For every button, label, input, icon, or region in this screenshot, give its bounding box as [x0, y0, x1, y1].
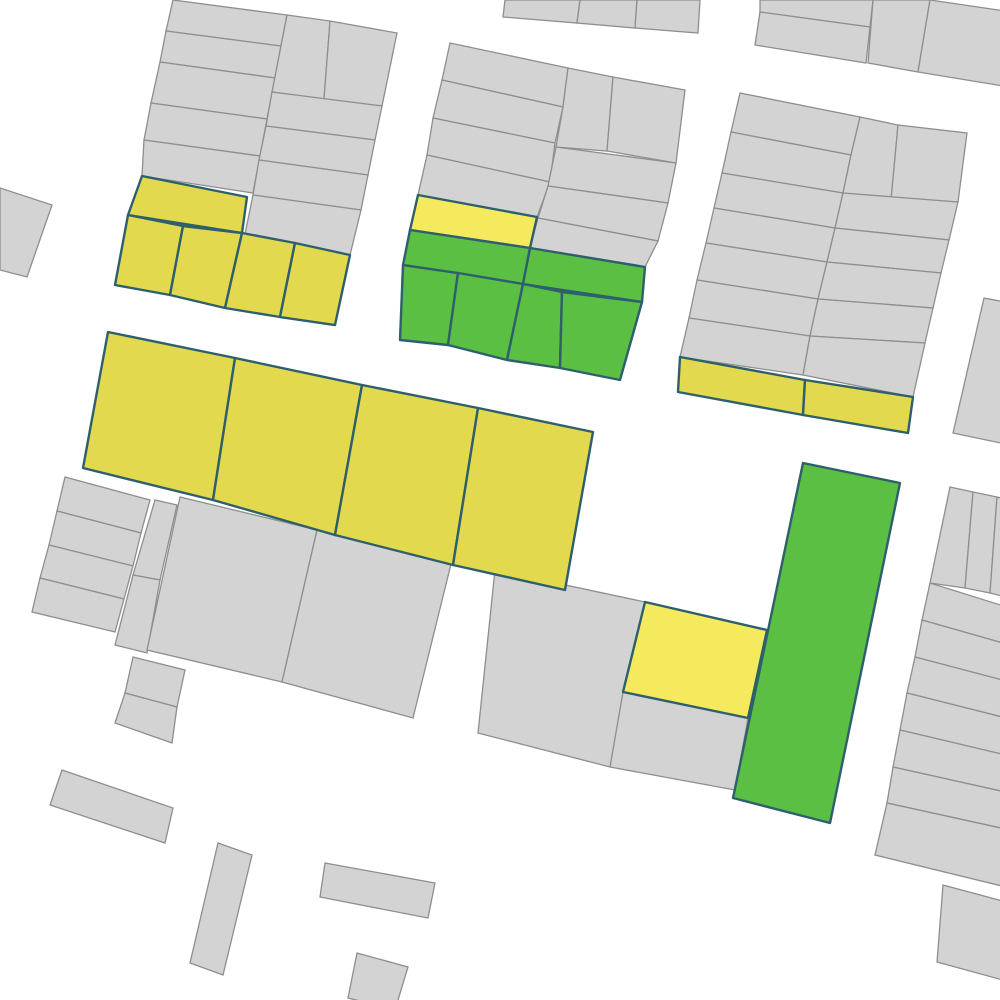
- parcel-gray[interactable]: [324, 21, 397, 106]
- parcel-gray[interactable]: [348, 953, 408, 1000]
- parcel-gray[interactable]: [190, 843, 252, 975]
- parcel-gray[interactable]: [607, 77, 685, 163]
- parcel-gray[interactable]: [50, 770, 173, 843]
- parcel-gray[interactable]: [635, 0, 700, 33]
- map-viewport[interactable]: [0, 0, 1000, 1000]
- parcel-gray[interactable]: [891, 125, 967, 202]
- parcel-gray[interactable]: [320, 863, 435, 918]
- parcel-yellow[interactable]: [453, 408, 593, 590]
- parcel-gray[interactable]: [953, 298, 1000, 445]
- parcel-gray[interactable]: [503, 0, 580, 23]
- parcel-green[interactable]: [560, 292, 642, 380]
- parcel-yellow[interactable]: [83, 332, 235, 500]
- parcel-gray[interactable]: [918, 0, 1000, 86]
- parcel-gray[interactable]: [937, 885, 1000, 982]
- map-canvas[interactable]: [0, 0, 1000, 1000]
- parcel-gray[interactable]: [0, 188, 52, 277]
- parcel-gray[interactable]: [577, 0, 637, 28]
